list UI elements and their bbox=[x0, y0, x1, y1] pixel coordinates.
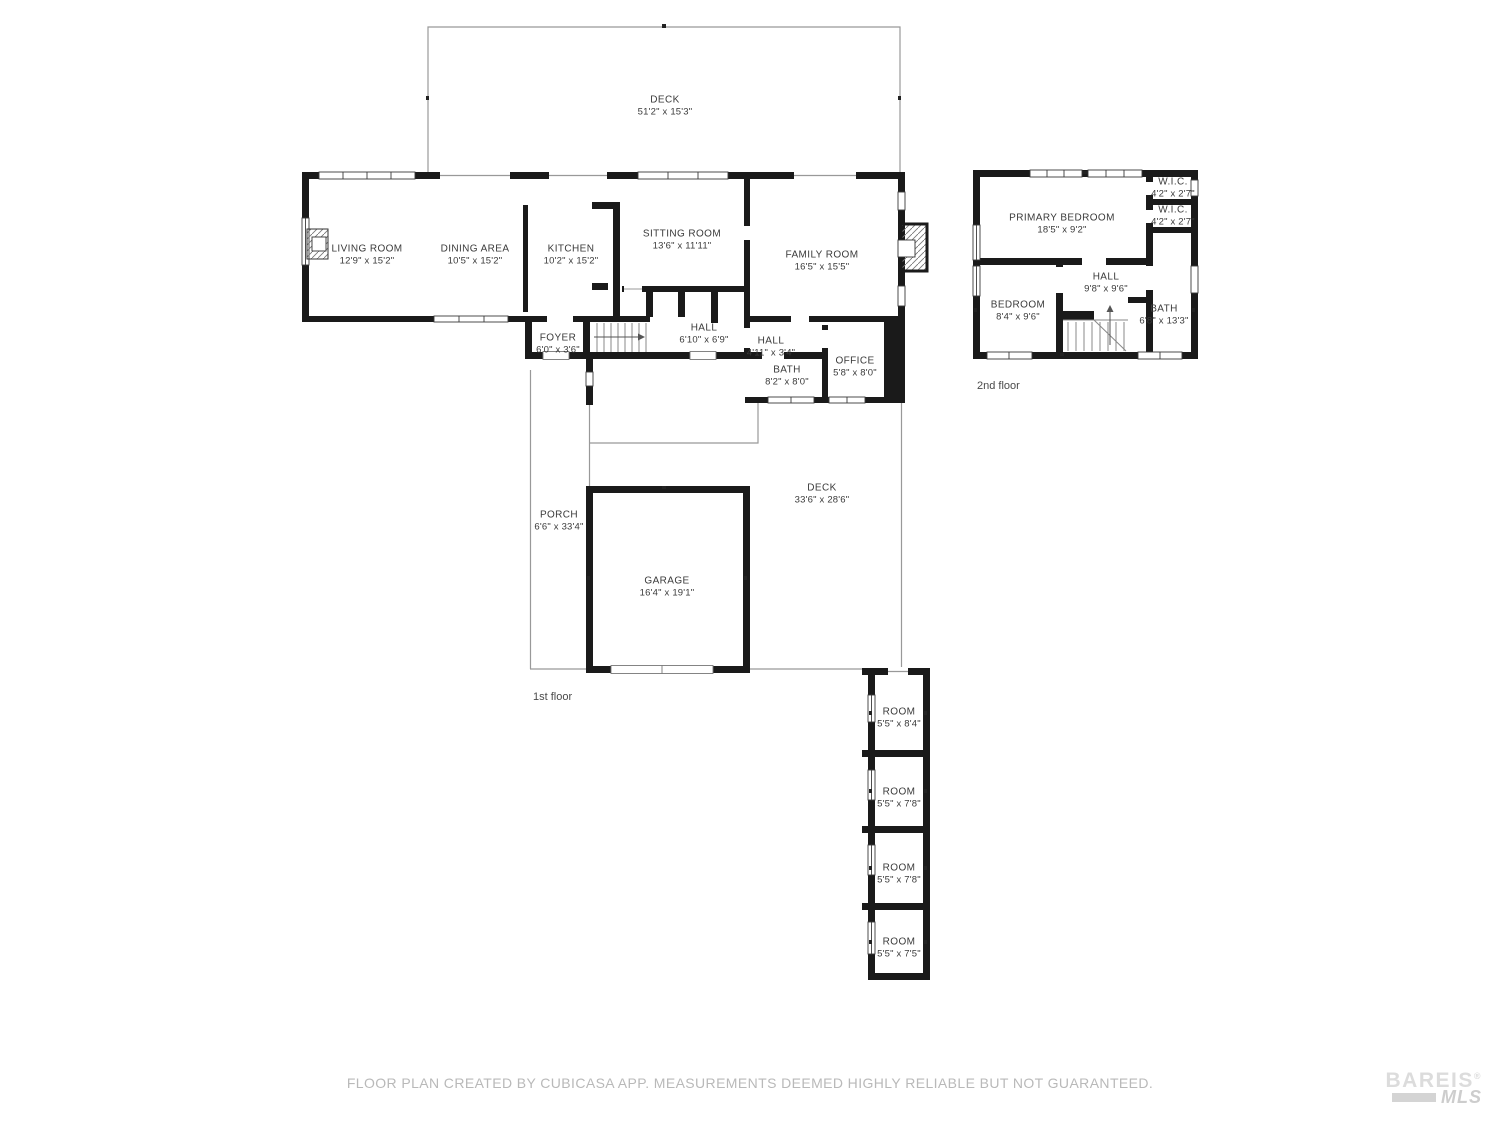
fireplace-icon-living-room bbox=[307, 229, 328, 259]
room-label-deck-main: DECK33'6" x 28'6" bbox=[795, 483, 850, 506]
first-floor-label: 1st floor bbox=[533, 691, 572, 703]
room-label-dining-area: DINING AREA10'5" x 15'2" bbox=[441, 244, 510, 267]
room-label-hall-second: HALL9'8" x 9'6" bbox=[1084, 272, 1128, 295]
floor-plan-drawing bbox=[0, 0, 1500, 1125]
room-label-wic-1: W.I.C.4'2" x 2'7" bbox=[1151, 177, 1195, 200]
registered-trademark-icon: ® bbox=[1474, 1071, 1482, 1081]
bareis-mls-logo: BAREIS® MLS bbox=[1386, 1066, 1483, 1108]
room-label-porch: PORCH6'6" x 33'4" bbox=[534, 510, 583, 533]
room-label-room-1: ROOM5'5" x 8'4" bbox=[877, 707, 921, 730]
logo-bar-icon bbox=[1392, 1093, 1436, 1102]
room-label-primary-bedroom: PRIMARY BEDROOM18'5" x 9'2" bbox=[1009, 213, 1115, 236]
stairs-arrow-second-floor bbox=[1107, 305, 1114, 312]
stairs-arrow-first-floor bbox=[638, 334, 645, 341]
fireplace-icon-family-room bbox=[898, 224, 927, 271]
room-label-office: OFFICE5'8" x 8'0" bbox=[833, 356, 877, 379]
room-label-hall-small: HALL4'11" x 3'4" bbox=[747, 336, 796, 359]
room-label-room-2: ROOM5'5" x 7'8" bbox=[877, 787, 921, 810]
room-label-family-room: FAMILY ROOM16'5" x 15'5" bbox=[786, 250, 859, 273]
room-label-room-4: ROOM5'5" x 7'5" bbox=[877, 937, 921, 960]
room-label-garage: GARAGE16'4" x 19'1" bbox=[640, 576, 695, 599]
room-label-hall-main: HALL6'10" x 6'9" bbox=[679, 323, 728, 346]
room-label-bath-second: BATH6'8" x 13'3" bbox=[1139, 304, 1188, 327]
room-label-living-room: LIVING ROOM12'9" x 15'2" bbox=[331, 244, 402, 267]
room-label-wic-2: W.I.C.4'2" x 2'7" bbox=[1151, 205, 1195, 228]
room-label-bath-first: BATH8'2" x 8'0" bbox=[765, 365, 809, 388]
deck-and-porch-outline bbox=[530, 370, 902, 669]
floor-plan-canvas: DECK51'2" x 15'3" LIVING ROOM12'9" x 15'… bbox=[0, 0, 1500, 1125]
garage-door bbox=[611, 666, 713, 674]
second-floor-label: 2nd floor bbox=[977, 380, 1020, 392]
room-label-sitting-room: SITTING ROOM13'6" x 11'11" bbox=[643, 229, 721, 252]
disclaimer-text: FLOOR PLAN CREATED BY CUBICASA APP. MEAS… bbox=[0, 1075, 1500, 1091]
room-label-kitchen: KITCHEN10'2" x 15'2" bbox=[544, 244, 599, 267]
room-label-foyer: FOYER6'0" x 3'6" bbox=[536, 333, 580, 356]
room-label-deck-top: DECK51'2" x 15'3" bbox=[638, 95, 693, 118]
room-label-room-3: ROOM5'5" x 7'8" bbox=[877, 863, 921, 886]
room-label-bedroom: BEDROOM8'4" x 9'6" bbox=[991, 300, 1045, 323]
